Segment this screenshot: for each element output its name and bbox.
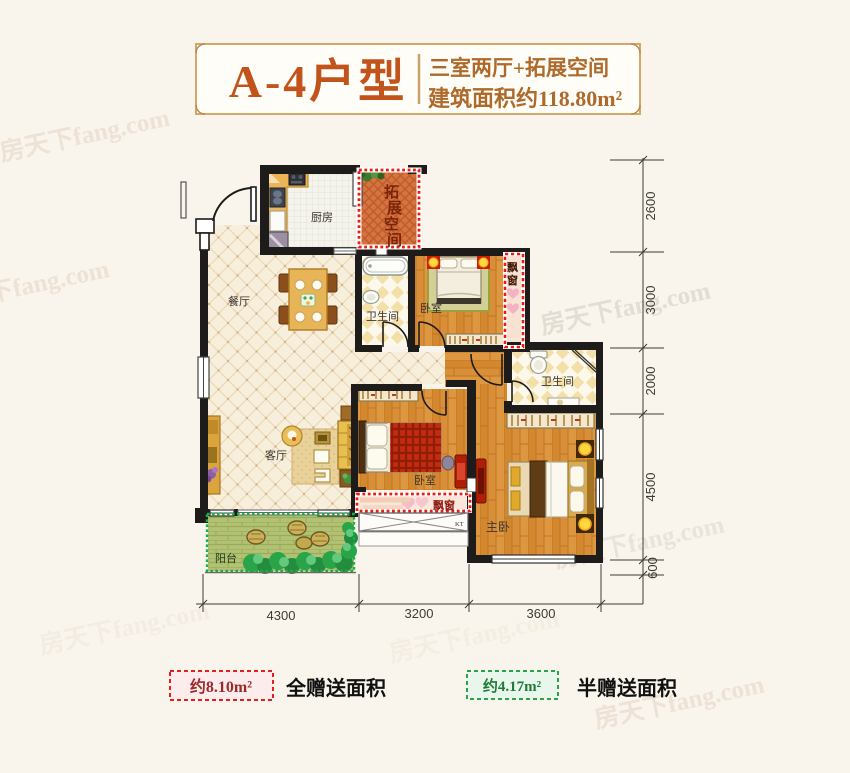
svg-text:空: 空 [384,215,399,233]
svg-text:半赠送面积: 半赠送面积 [577,676,677,700]
svg-text:4500: 4500 [643,473,658,502]
svg-text:2000: 2000 [643,367,658,396]
svg-text:约4.17m²: 约4.17m² [483,677,542,695]
svg-text:阳台: 阳台 [215,551,237,565]
svg-text:建筑面积约118.80m²: 建筑面积约118.80m² [428,86,623,111]
svg-text:三室两厅+拓展空间: 三室两厅+拓展空间 [429,56,609,80]
svg-text:KT: KT [455,521,464,528]
svg-text:窗: 窗 [507,273,518,287]
svg-text:餐厅: 餐厅 [228,294,250,308]
svg-text:卫生间: 卫生间 [366,309,399,323]
svg-text:600: 600 [645,557,660,579]
svg-text:飘: 飘 [507,261,518,274]
svg-text:主卧: 主卧 [486,520,510,534]
svg-text:4300: 4300 [267,608,296,623]
svg-text:厨房: 厨房 [311,211,333,224]
svg-text:卫生间: 卫生间 [541,374,574,388]
svg-text:3200: 3200 [405,606,434,621]
svg-text:3000: 3000 [643,286,658,315]
svg-text:拓: 拓 [384,183,399,201]
svg-text:间: 间 [387,231,402,249]
svg-text:展: 展 [387,200,402,217]
svg-text:全赠送面积: 全赠送面积 [285,676,386,700]
svg-text:飘窗: 飘窗 [433,498,455,512]
svg-text:卧室: 卧室 [414,473,436,487]
svg-text:A-4户型: A-4户型 [229,56,408,107]
svg-text:卧室: 卧室 [420,301,442,315]
svg-text:3600: 3600 [527,606,556,621]
svg-text:约8.10m²: 约8.10m² [190,677,252,696]
svg-text:2600: 2600 [643,192,658,221]
svg-text:客厅: 客厅 [265,448,287,462]
